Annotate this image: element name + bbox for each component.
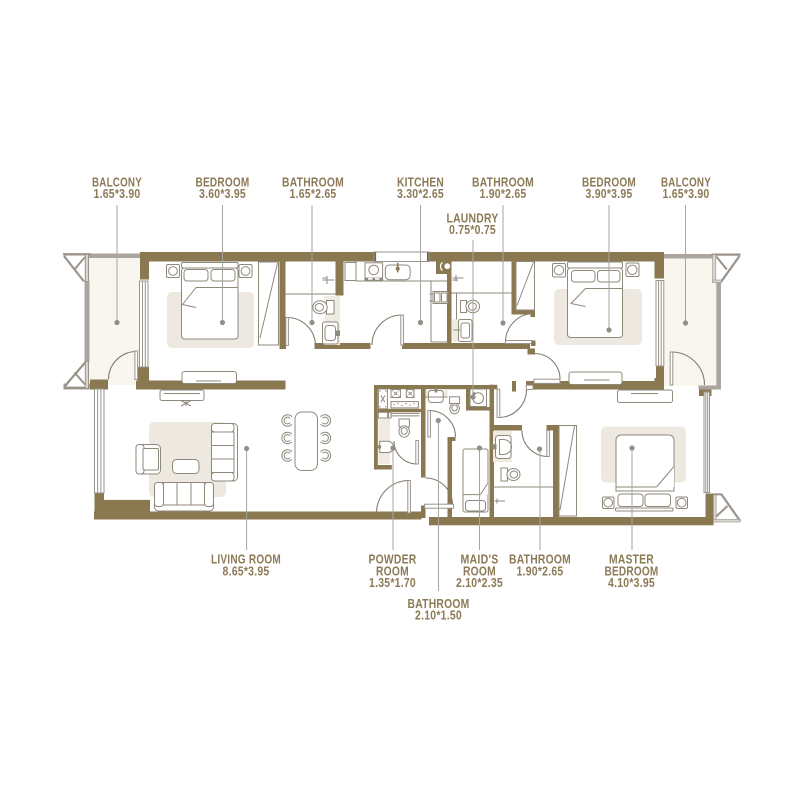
svg-text:3.60*3.95: 3.60*3.95 [199, 186, 246, 201]
svg-text:2.10*2.35: 2.10*2.35 [456, 575, 503, 590]
svg-text:3.30*2.65: 3.30*2.65 [397, 186, 444, 201]
svg-text:3.90*3.95: 3.90*3.95 [586, 186, 633, 201]
svg-text:8.65*3.95: 8.65*3.95 [223, 564, 270, 579]
svg-text:4.10*3.95: 4.10*3.95 [608, 575, 655, 590]
svg-text:1.35*1.70: 1.35*1.70 [369, 575, 416, 590]
svg-text:1.65*3.90: 1.65*3.90 [94, 186, 141, 201]
svg-text:2.10*1.50: 2.10*1.50 [415, 608, 462, 623]
svg-text:1.90*2.65: 1.90*2.65 [517, 564, 564, 579]
svg-text:1.65*3.90: 1.65*3.90 [663, 186, 710, 201]
svg-text:0.75*0.75: 0.75*0.75 [449, 222, 496, 237]
svg-text:1.90*2.65: 1.90*2.65 [480, 186, 527, 201]
svg-text:1.65*2.65: 1.65*2.65 [290, 186, 337, 201]
